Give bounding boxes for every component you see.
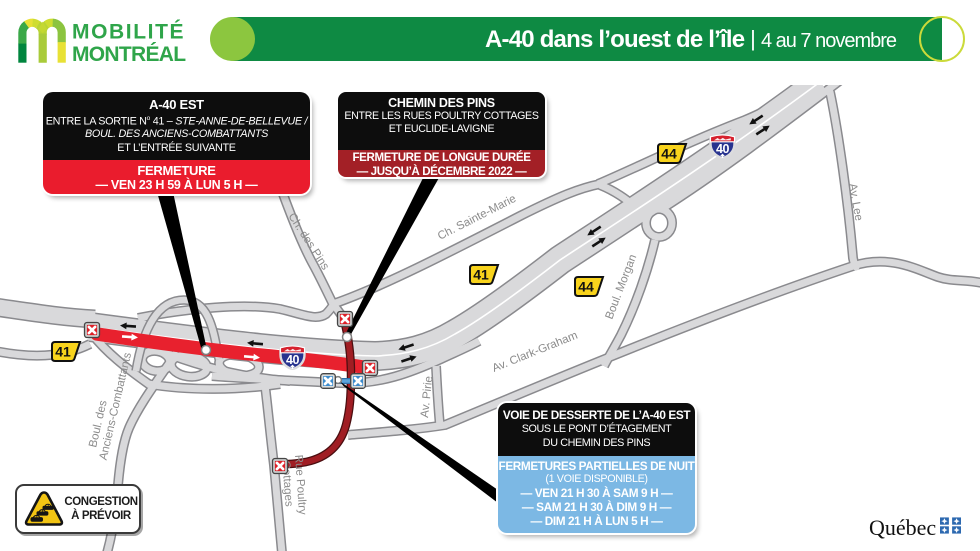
svg-text:44: 44 — [578, 279, 594, 295]
svg-text:41: 41 — [473, 267, 489, 283]
svg-text:44: 44 — [661, 146, 677, 162]
svg-text:MONTRÉAL: MONTRÉAL — [72, 43, 186, 66]
svg-text:MOBILITÉ: MOBILITÉ — [72, 21, 185, 44]
svg-text:Av. Clark-Graham: Av. Clark-Graham — [491, 330, 580, 375]
svg-text:41: 41 — [55, 344, 71, 360]
svg-text:Av. Pirie: Av. Pirie — [419, 376, 435, 419]
